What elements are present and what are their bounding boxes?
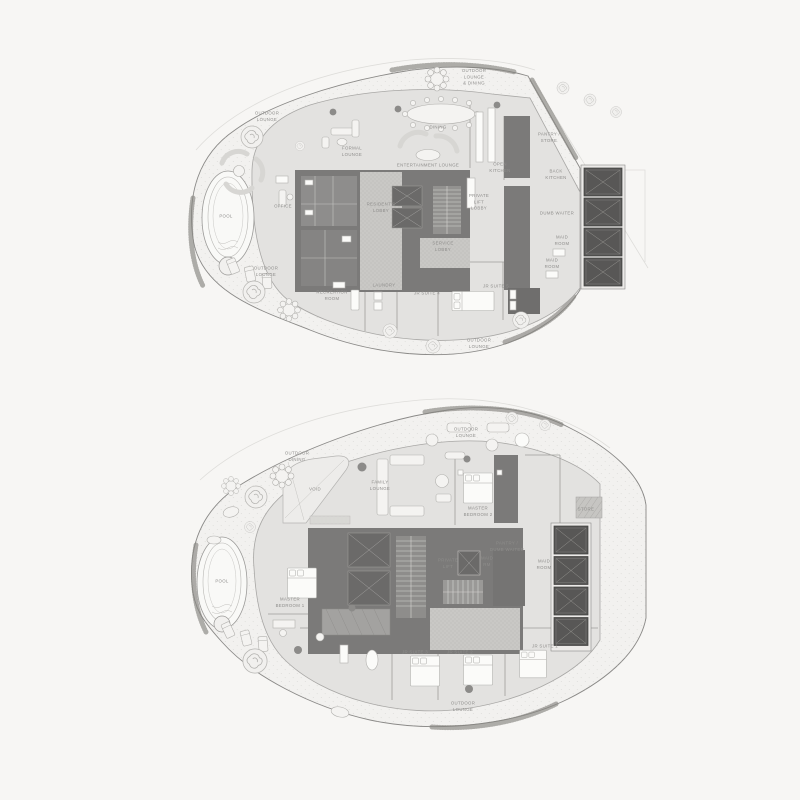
elevator-bank-upper (581, 165, 625, 289)
upper-floor-plan (180, 55, 650, 370)
lower-floor-plan (180, 398, 655, 748)
floor-plan-sheet: OUTDOOR LOUNGEOUTDOOR LOUNGE & DININGDIN… (0, 0, 800, 800)
elevator-bank-lower (551, 523, 591, 651)
